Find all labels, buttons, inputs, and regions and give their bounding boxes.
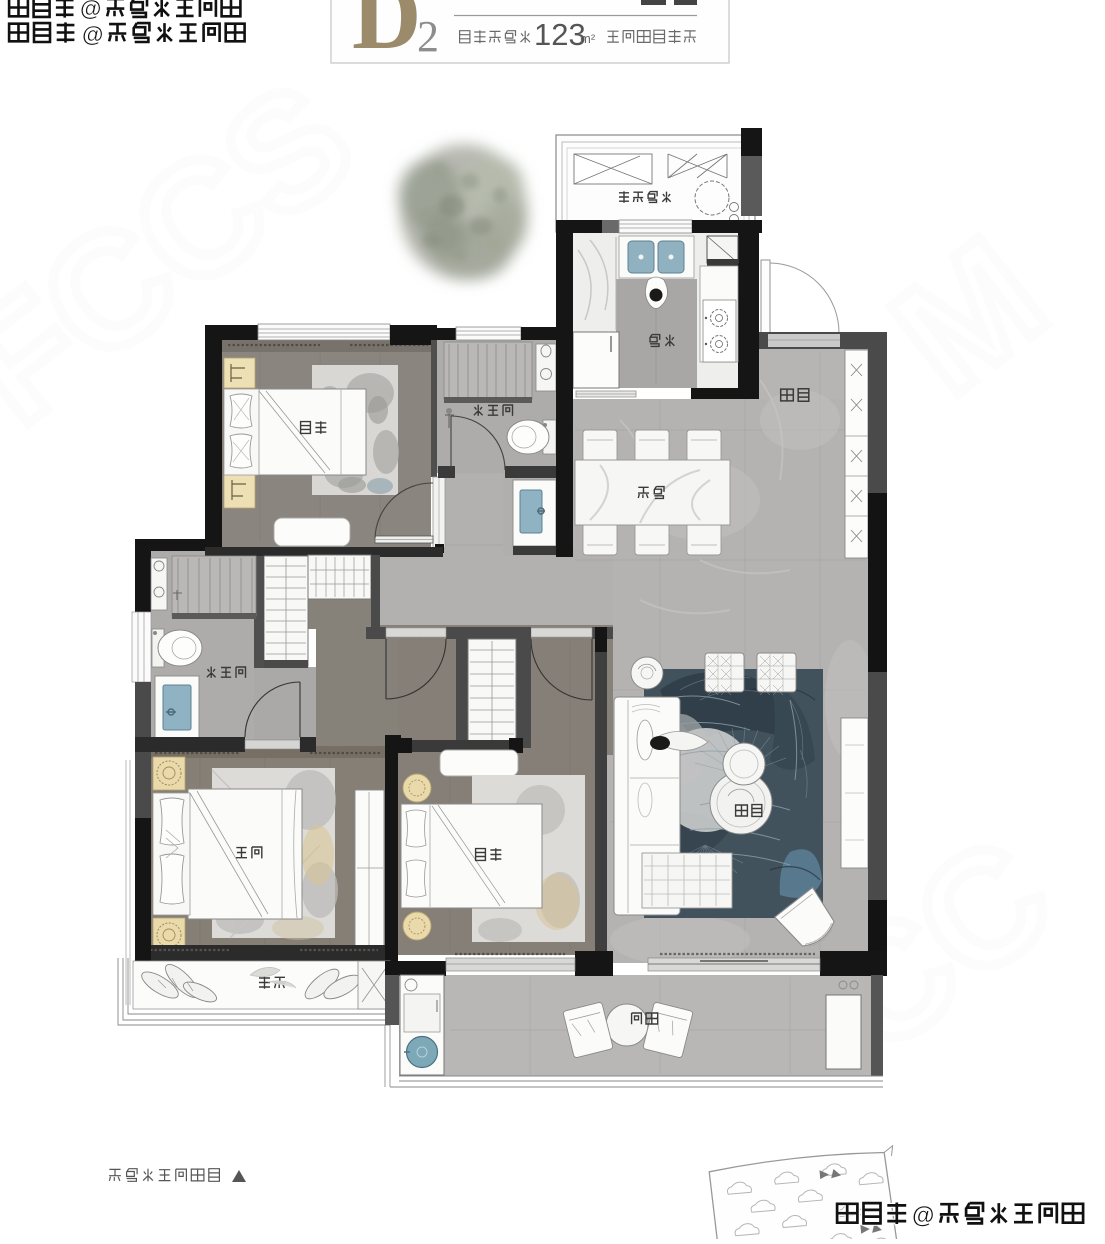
svg-text:m²: m²	[580, 31, 596, 46]
svg-text:2: 2	[417, 12, 439, 61]
svg-text:@: @	[912, 1202, 934, 1228]
svg-text:@: @	[82, 22, 103, 47]
svg-text:D: D	[352, 0, 421, 69]
svg-text:123: 123	[534, 17, 586, 52]
svg-text:@: @	[80, 0, 101, 21]
